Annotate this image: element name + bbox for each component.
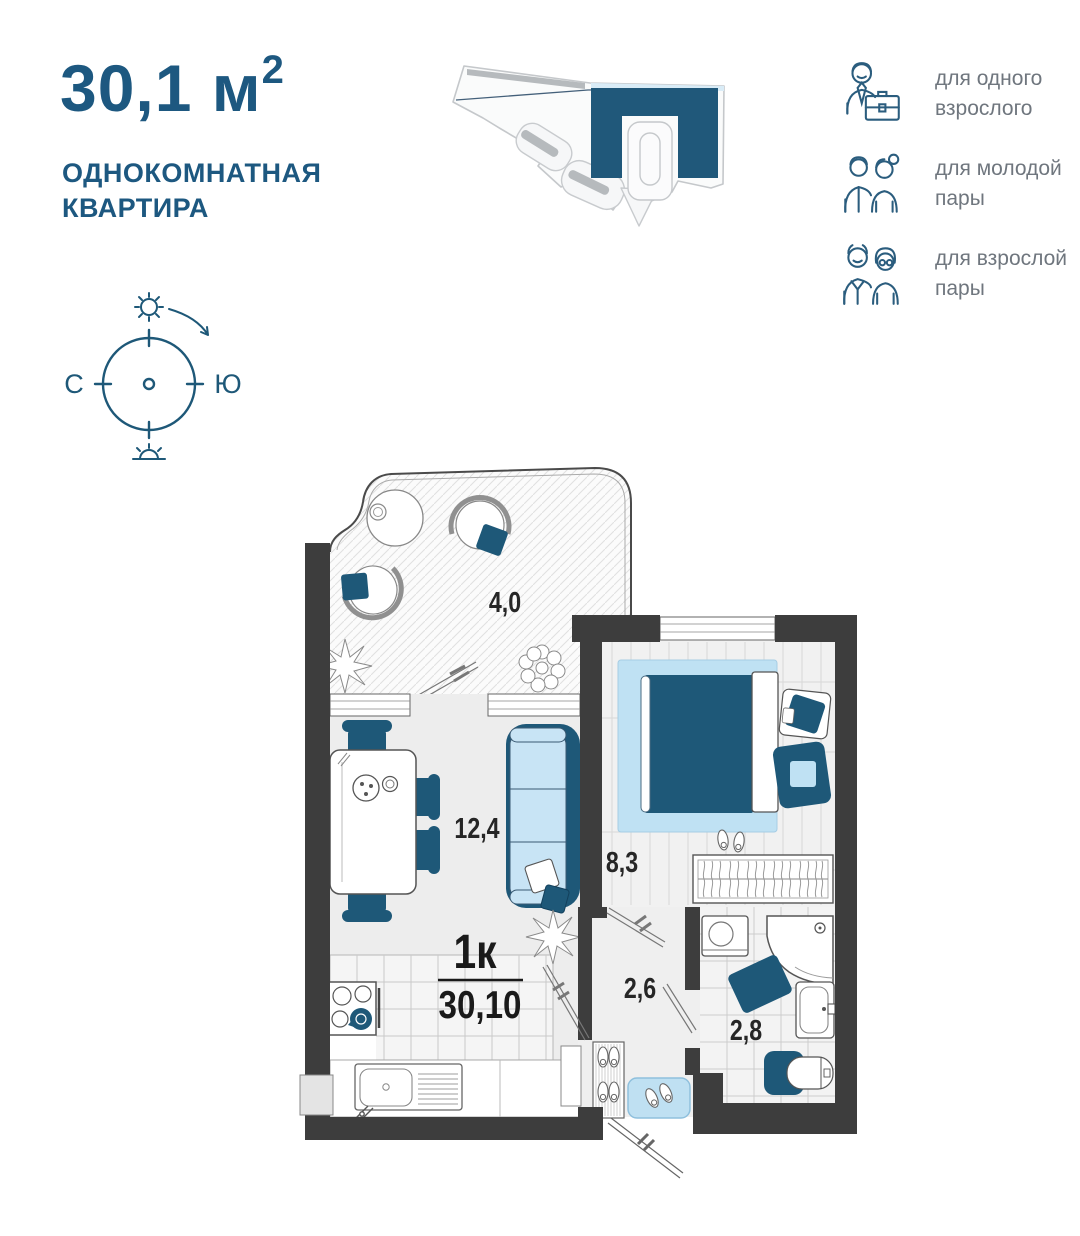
- sofa: [506, 724, 580, 914]
- bedroom-window: [660, 617, 775, 640]
- hall-area-label: 2,6: [624, 971, 656, 1004]
- subtitle-line2: КВАРТИРА: [62, 191, 321, 226]
- compass: С Ю: [50, 282, 255, 482]
- washing-machine: [702, 916, 748, 956]
- living-area-label: 12,4: [454, 811, 499, 844]
- audience-row-young-couple: для молодой пары: [835, 148, 1080, 220]
- dining-table: [330, 750, 416, 894]
- kitchen-stove: [328, 982, 379, 1035]
- bed-blanket: [645, 675, 753, 813]
- total-area-label: 30,10: [439, 982, 522, 1026]
- plant-icon: [526, 910, 580, 964]
- businessman-icon: [835, 58, 907, 130]
- adult-couple-icon: [835, 238, 907, 310]
- compass-south-label: Ю: [214, 369, 241, 399]
- bed-fold: [641, 676, 650, 812]
- sun-icon: [135, 293, 163, 321]
- sun-path-arrow: [169, 309, 208, 335]
- wall-shaft: [300, 1075, 333, 1115]
- audience-label: для взрослой пары: [935, 238, 1080, 304]
- young-couple-icon: [835, 148, 907, 220]
- bathroom-sink: [796, 982, 835, 1038]
- sunset-icon: [133, 444, 165, 459]
- toilet: [764, 1051, 833, 1095]
- audience-label: для одного взрослого: [935, 58, 1080, 124]
- floorplan-page: 30,1 м2 ОДНОКОМНАТНАЯ КВАРТИРА: [0, 0, 1080, 1236]
- balcony-window: [330, 694, 410, 716]
- bed-pillow: [772, 741, 832, 810]
- bedroom-area-label: 8,3: [606, 845, 638, 878]
- entrance-door-leaf: [608, 1118, 683, 1178]
- kitchen-door-leaf-open: [561, 1046, 581, 1106]
- page-title: 30,1 м2: [60, 48, 285, 126]
- floor-plan: 4,0 12,4 8,3 2,6 2,8 1к 30,10: [290, 450, 870, 1236]
- wardrobe: [693, 855, 833, 903]
- audience-label: для молодой пары: [935, 148, 1080, 214]
- apartment-type-subtitle: ОДНОКОМНАТНАЯ КВАРТИРА: [62, 156, 321, 226]
- compass-north-label: С: [64, 369, 84, 399]
- building-location-diagram: [425, 38, 760, 243]
- subtitle-line1: ОДНОКОМНАТНАЯ: [62, 156, 321, 191]
- area-value: 30,1 м: [60, 51, 262, 125]
- apartment-type-label: 1к: [453, 926, 497, 979]
- balcony-area-label: 4,0: [489, 585, 521, 618]
- bed-pillow: [779, 689, 832, 740]
- doormat: [628, 1078, 690, 1118]
- balcony-table: [367, 490, 423, 546]
- bath-area-label: 2,8: [730, 1013, 762, 1046]
- balcony-window: [488, 694, 580, 716]
- area-exponent: 2: [262, 48, 285, 92]
- audience-row-single-adult: для одного взрослого: [835, 58, 1080, 130]
- audience-row-adult-couple: для взрослой пары: [835, 238, 1080, 310]
- bed-headboard: [752, 672, 778, 812]
- shoe-rack: [593, 1042, 624, 1118]
